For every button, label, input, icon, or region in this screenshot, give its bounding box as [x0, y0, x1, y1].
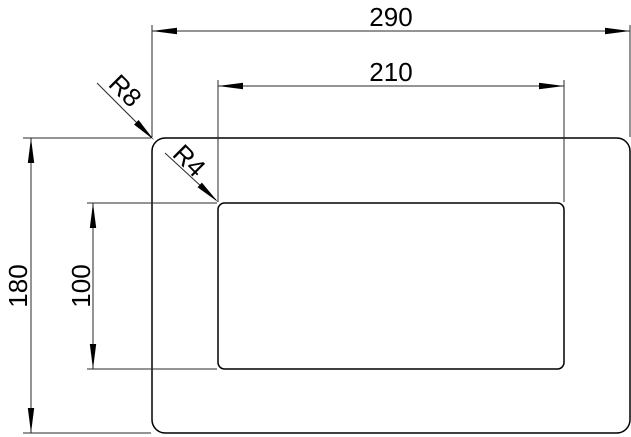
dimension-inner-height: 100 [66, 203, 217, 369]
arrowhead-down-icon [28, 408, 34, 433]
dimension-inner-width: 210 [218, 57, 564, 202]
radius-label-outer: R8 [103, 68, 148, 113]
dimension-label-outer-height: 180 [3, 264, 33, 307]
arrowhead-right-icon [605, 28, 630, 34]
dimension-label-outer-width: 290 [369, 2, 412, 32]
radius-callout-outer: R8 [97, 68, 156, 142]
radius-callout-inner: R4 [165, 138, 220, 204]
drawing-canvas: 290 210 180 100 R8 R4 [0, 0, 631, 437]
arrowhead-left-icon [218, 83, 243, 89]
arrowhead-leader-icon [198, 183, 221, 205]
arrowhead-up-icon [90, 203, 96, 228]
technical-drawing: 290 210 180 100 R8 R4 [0, 0, 631, 437]
arrowhead-right-icon [539, 83, 564, 89]
dimension-label-inner-width: 210 [369, 57, 412, 87]
radius-label-inner: R4 [167, 138, 212, 183]
arrowhead-leader-icon [134, 120, 156, 142]
arrowhead-up-icon [28, 138, 34, 163]
arrowhead-down-icon [90, 344, 96, 369]
inner-rounded-rectangle [218, 203, 564, 369]
dimension-label-inner-height: 100 [66, 264, 96, 307]
arrowhead-left-icon [152, 28, 177, 34]
outer-rounded-rectangle [152, 138, 630, 433]
